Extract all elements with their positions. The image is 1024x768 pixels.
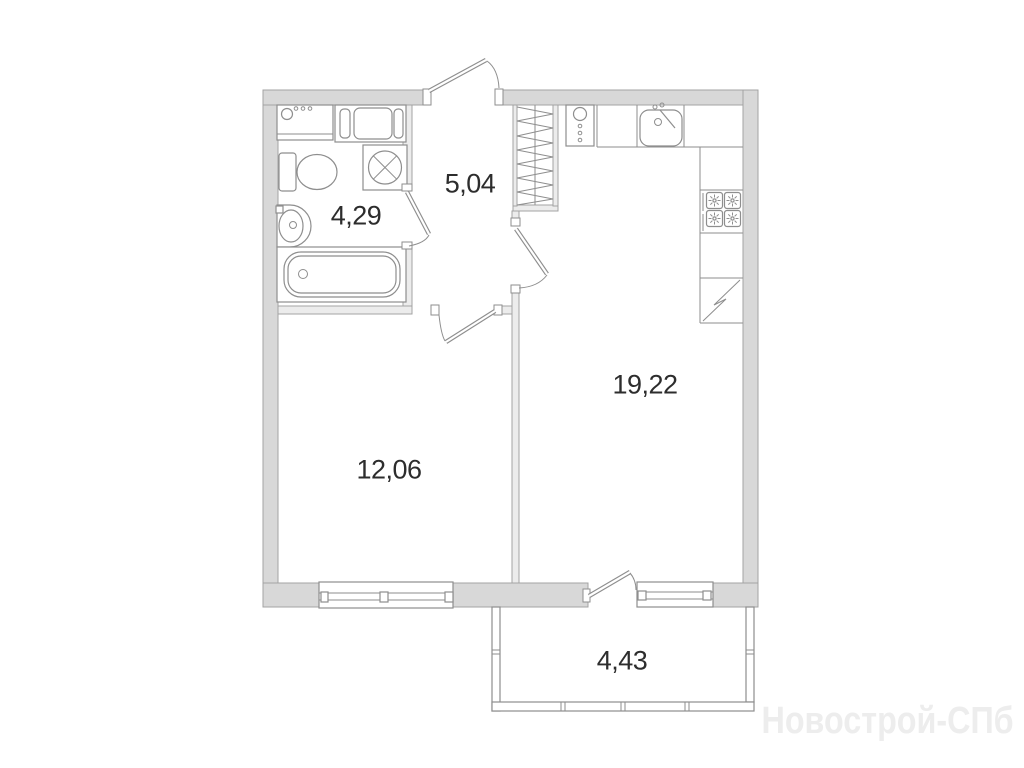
- area-label-bathroom: 4,29: [331, 201, 382, 232]
- washing-machine: [277, 105, 333, 140]
- floor-plan: 4,29 5,04 12,06 19,22 4,43 Новострой-СПб: [0, 0, 1024, 768]
- toilet: [279, 153, 337, 191]
- wardrobe: [517, 105, 553, 205]
- entrance-door: [423, 60, 503, 105]
- wash-basin: [276, 205, 311, 247]
- area-label-kitchen: 19,22: [612, 370, 677, 401]
- bathtub: [277, 247, 406, 302]
- living-room-window: [319, 582, 453, 608]
- kitchen-window: [637, 582, 713, 607]
- ventilation-unit: [363, 145, 407, 190]
- balcony-door: [583, 572, 636, 602]
- floor-plan-drawing: [0, 0, 1024, 768]
- bathroom-door: [402, 184, 429, 249]
- stove: [703, 193, 741, 232]
- oven-column: [566, 105, 594, 146]
- outer-walls: [263, 90, 758, 607]
- bathroom-cabinet: [335, 105, 406, 142]
- area-label-living-room: 12,06: [356, 455, 421, 486]
- kitchen-door: [511, 218, 547, 293]
- area-label-hallway: 5,04: [445, 169, 496, 200]
- area-label-balcony: 4,43: [597, 646, 648, 677]
- corner-cabinet: [703, 280, 740, 321]
- kitchen-sink: [640, 103, 682, 146]
- watermark: Новострой-СПб: [762, 700, 1014, 743]
- living-room-door: [431, 305, 502, 342]
